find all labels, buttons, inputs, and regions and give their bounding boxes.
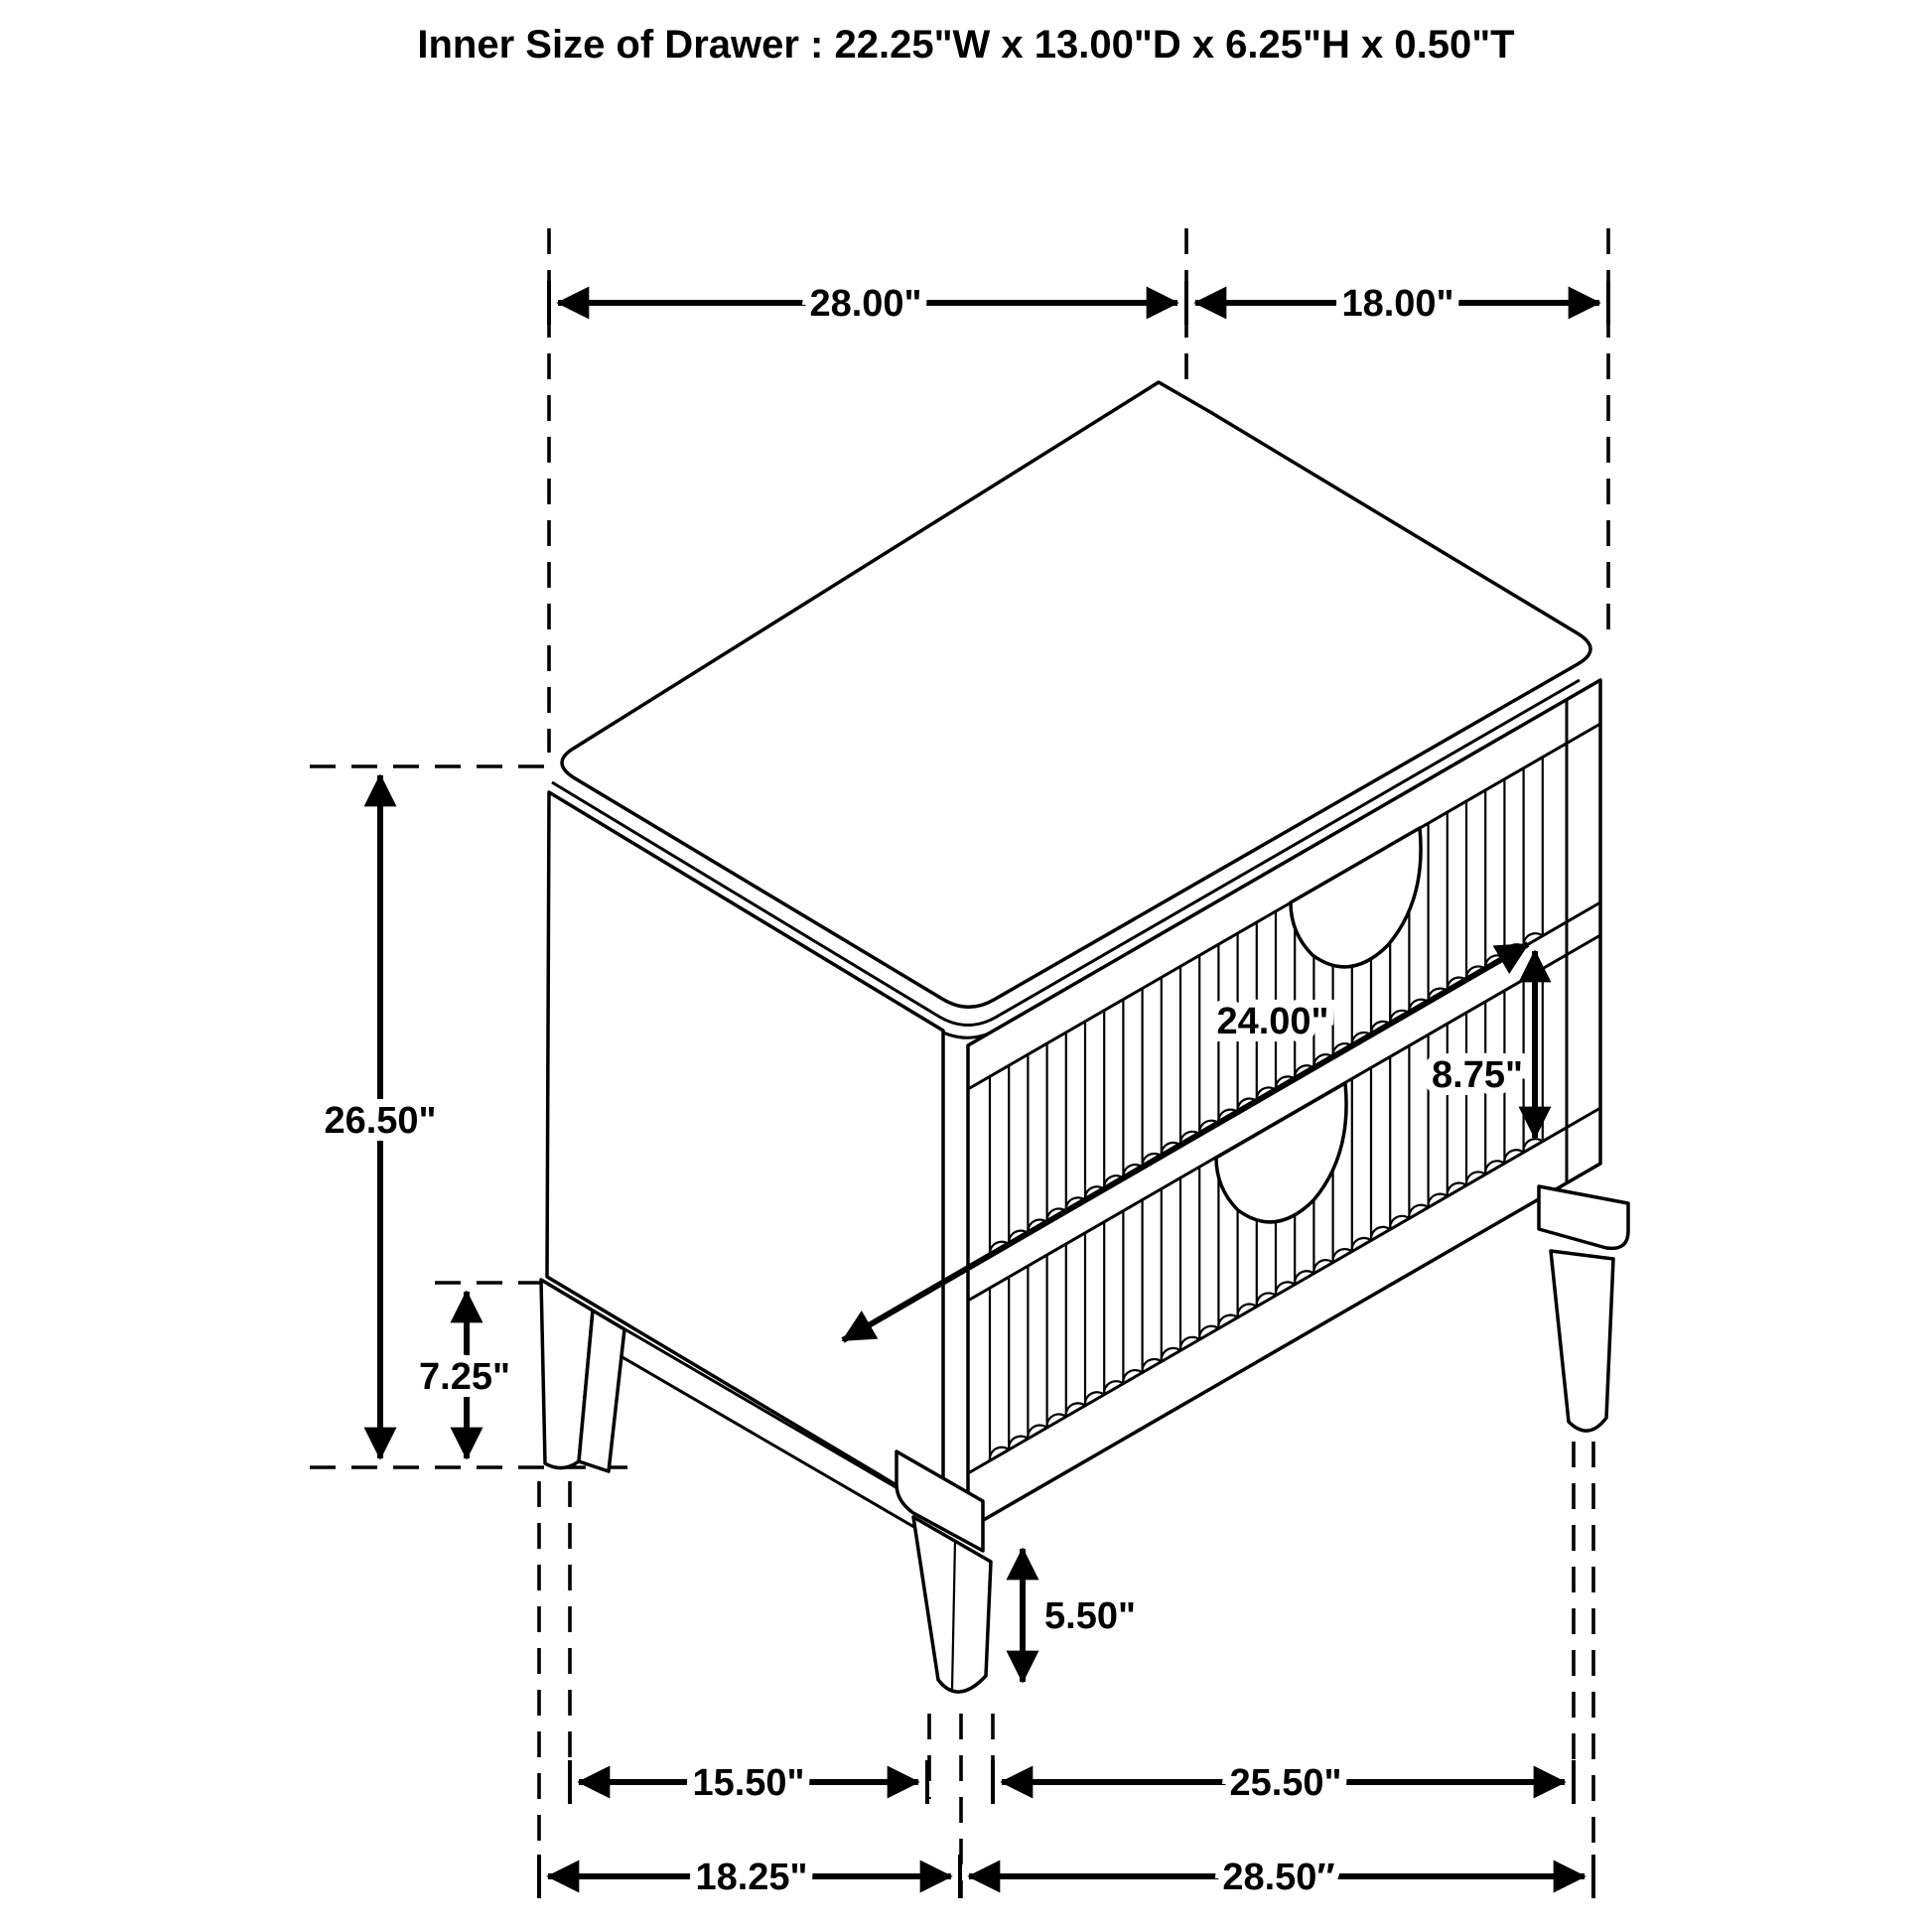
front-right-leg <box>1539 1186 1628 1431</box>
dim-top-width: 28.00" <box>558 283 1177 325</box>
dim-front-leg-height-label: 5.50" <box>1044 1595 1136 1637</box>
dim-base-depth: 18.25" <box>548 1857 951 1898</box>
dim-top-depth: 18.00" <box>1195 283 1599 325</box>
dim-drawer-front-width-label: 24.00" <box>1216 1001 1328 1042</box>
dim-side-leg-height-label: 7.25" <box>419 1356 510 1398</box>
dim-base-width-label: 28.50″ <box>1222 1857 1334 1898</box>
nightstand-drawing <box>541 382 1628 1692</box>
dimension-diagram: 28.00" 18.00" 26.50" 7.25" 24.00" 8.75" … <box>0 0 1932 1932</box>
dim-side-leg-spacing: 15.50" <box>579 1762 918 1804</box>
dim-drawer-front-height-label: 8.75" <box>1432 1054 1523 1096</box>
dim-base-width: 28.50″ <box>969 1857 1585 1898</box>
dim-top-width-label: 28.00" <box>809 283 921 325</box>
page-title: Inner Size of Drawer : 22.25"W x 13.00"D… <box>417 23 1514 67</box>
dim-top-depth-label: 18.00" <box>1341 283 1453 325</box>
dim-base-depth-label: 18.25" <box>695 1857 807 1898</box>
diagram-page: 28.00" 18.00" 26.50" 7.25" 24.00" 8.75" … <box>0 0 1932 1932</box>
dim-side-leg-height: 7.25" <box>419 1292 510 1458</box>
dim-front-leg-height: 5.50" <box>1023 1549 1136 1682</box>
dim-front-leg-spacing: 25.50" <box>1002 1762 1565 1804</box>
dim-overall-height-label: 26.50" <box>324 1100 436 1142</box>
dim-side-leg-spacing-label: 15.50" <box>692 1762 804 1804</box>
dim-front-leg-spacing-label: 25.50" <box>1229 1762 1341 1804</box>
